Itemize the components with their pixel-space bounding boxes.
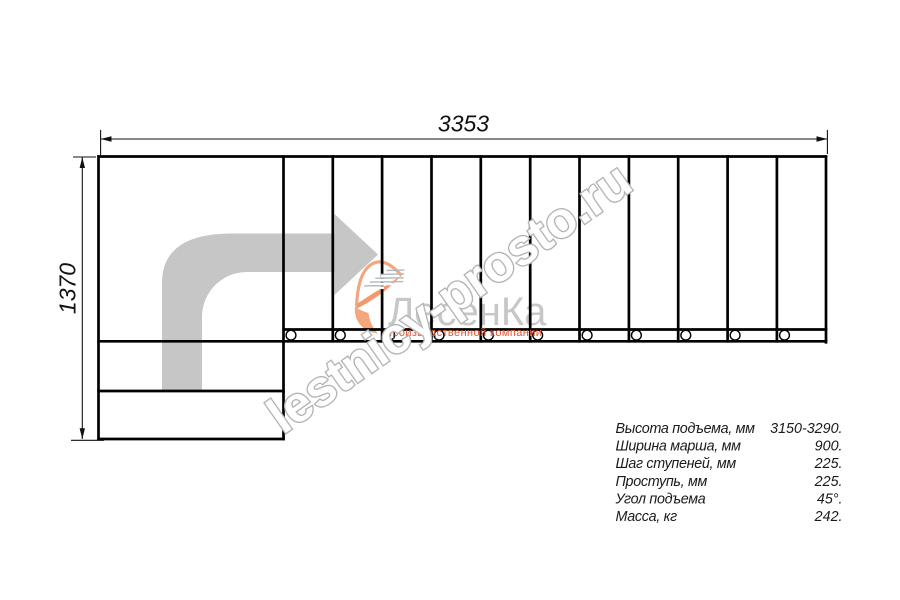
- svg-text:225.: 225.: [814, 474, 843, 490]
- svg-text:1370: 1370: [55, 263, 81, 314]
- svg-text:900.: 900.: [815, 439, 843, 455]
- svg-text:3353: 3353: [438, 111, 489, 137]
- svg-text:Ширина марша, мм: Ширина марша, мм: [616, 439, 742, 455]
- svg-text:Масса, кг: Масса, кг: [616, 509, 678, 525]
- svg-text:225.: 225.: [814, 456, 843, 472]
- svg-text:Шаг ступеней, мм: Шаг ступеней, мм: [616, 456, 737, 472]
- svg-text:Высота подъема, мм: Высота подъема, мм: [616, 421, 756, 437]
- svg-text:Проступь, мм: Проступь, мм: [616, 474, 708, 490]
- svg-text:242.: 242.: [814, 509, 843, 525]
- svg-text:Угол подъема: Угол подъема: [615, 491, 706, 507]
- svg-text:3150-3290.: 3150-3290.: [770, 421, 842, 437]
- svg-text:45°.: 45°.: [817, 491, 843, 507]
